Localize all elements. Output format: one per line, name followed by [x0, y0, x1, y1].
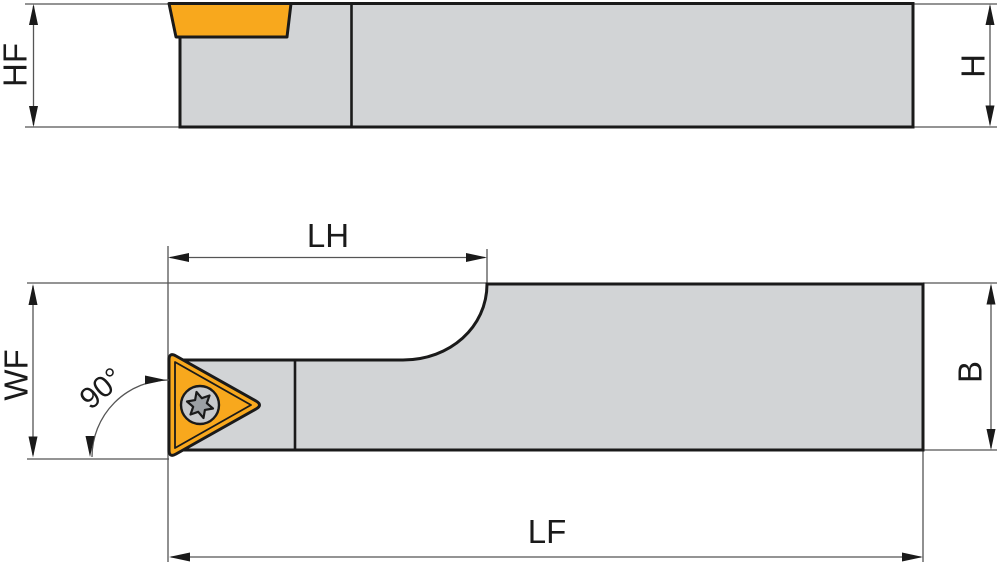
- arrowhead-right: [145, 376, 166, 385]
- arrowhead-left: [169, 553, 190, 562]
- dimension-label-lh: LH: [307, 217, 349, 254]
- arrowhead-down: [987, 429, 996, 450]
- wf-dimension: WF: [0, 284, 38, 458]
- dimension-label-h: H: [955, 54, 992, 78]
- arrowhead-down: [29, 106, 38, 127]
- lf-dimension: LF: [169, 513, 923, 562]
- arrowhead-right: [902, 553, 923, 562]
- arrowhead-up: [29, 4, 38, 25]
- arrowhead-up: [29, 284, 38, 305]
- plan-view: LH WF B LF 90°: [0, 217, 997, 562]
- arrowhead-down: [986, 106, 995, 127]
- holder-body-plan: [170, 284, 923, 450]
- dimension-label-lf: LF: [528, 513, 567, 550]
- dimension-label-wf: WF: [0, 349, 35, 400]
- dimension-label-hf: HF: [0, 43, 34, 87]
- tool-holder-technical-drawing: HF H: [0, 0, 1000, 568]
- entering-angle-annotation: 90°: [74, 362, 169, 457]
- drawing-canvas: HF H: [0, 0, 1000, 568]
- b-dimension: B: [952, 284, 996, 451]
- lh-dimension: LH: [168, 217, 487, 262]
- arrowhead-up: [987, 284, 996, 305]
- arrowhead-up: [986, 4, 995, 25]
- arrowhead-down: [29, 437, 38, 458]
- arrowhead-left: [168, 253, 189, 262]
- dimension-label-b: B: [952, 361, 989, 383]
- arrowhead-right: [466, 253, 487, 262]
- h-dimension: H: [955, 4, 995, 127]
- side-view: HF H: [0, 4, 997, 128]
- angle-label: 90°: [74, 362, 130, 416]
- insert-side: [169, 4, 291, 38]
- hf-dimension: HF: [0, 4, 38, 127]
